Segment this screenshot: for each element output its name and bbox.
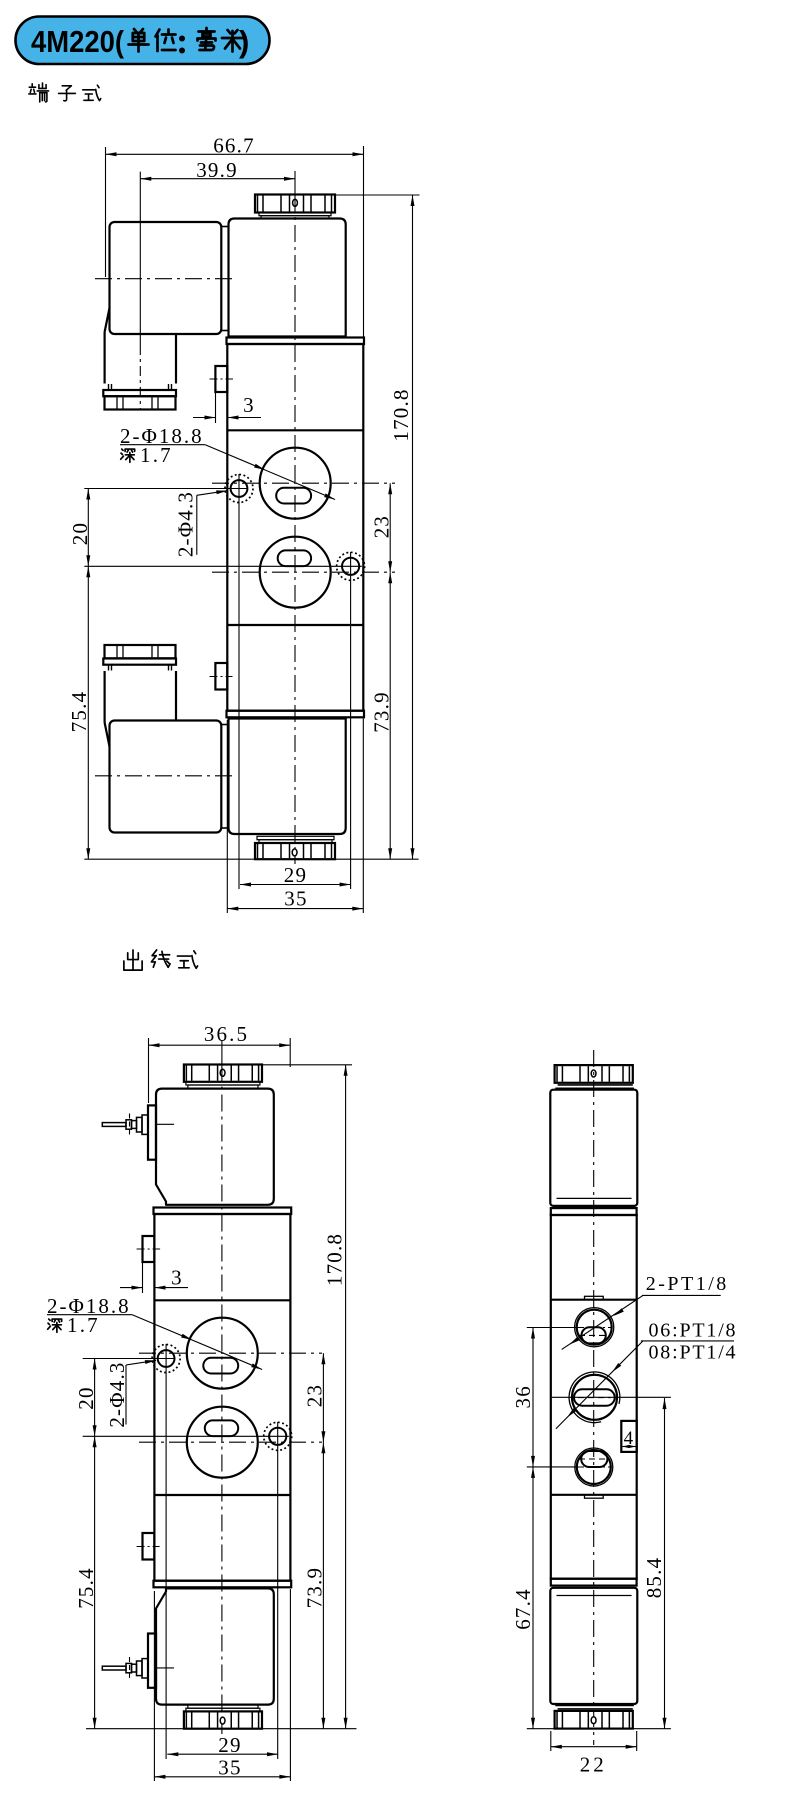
svg-text:39.9: 39.9 <box>196 158 238 182</box>
svg-text:06:PT1/8: 06:PT1/8 <box>649 1320 738 1342</box>
svg-text:3: 3 <box>243 393 255 417</box>
svg-text:170.8: 170.8 <box>389 388 413 441</box>
svg-text:66.7: 66.7 <box>213 134 255 158</box>
svg-text:36.5: 36.5 <box>204 1022 249 1046</box>
svg-text:170.8: 170.8 <box>323 1233 347 1286</box>
svg-text:20: 20 <box>74 1386 98 1409</box>
svg-text:2-Φ4.3: 2-Φ4.3 <box>174 491 198 557</box>
svg-text:20: 20 <box>68 522 92 545</box>
svg-text:22: 22 <box>580 1753 607 1777</box>
svg-text:35: 35 <box>218 1756 241 1780</box>
svg-text:4M220(: 4M220( <box>31 24 125 59</box>
svg-text:1.7: 1.7 <box>140 443 173 467</box>
svg-text:23: 23 <box>370 515 394 538</box>
svg-text:2-Φ4.3: 2-Φ4.3 <box>105 1361 129 1427</box>
svg-text:75.4: 75.4 <box>67 691 91 733</box>
svg-text:75.4: 75.4 <box>74 1567 98 1609</box>
svg-text:73.9: 73.9 <box>303 1567 327 1609</box>
svg-text:67.4: 67.4 <box>511 1588 535 1630</box>
svg-text:29: 29 <box>284 863 307 887</box>
svg-text:85.4: 85.4 <box>642 1557 666 1599</box>
svg-text:3: 3 <box>171 1266 183 1290</box>
svg-text:23: 23 <box>303 1384 327 1407</box>
svg-text:35: 35 <box>284 887 307 911</box>
svg-text:36: 36 <box>511 1385 535 1408</box>
svg-text:08:PT1/4: 08:PT1/4 <box>649 1342 738 1364</box>
svg-text:73.9: 73.9 <box>370 691 394 733</box>
svg-text:1.7: 1.7 <box>67 1313 100 1337</box>
svg-text:2-PT1/8: 2-PT1/8 <box>646 1273 729 1295</box>
svg-text:29: 29 <box>218 1733 241 1757</box>
svg-text:): ) <box>239 24 249 59</box>
